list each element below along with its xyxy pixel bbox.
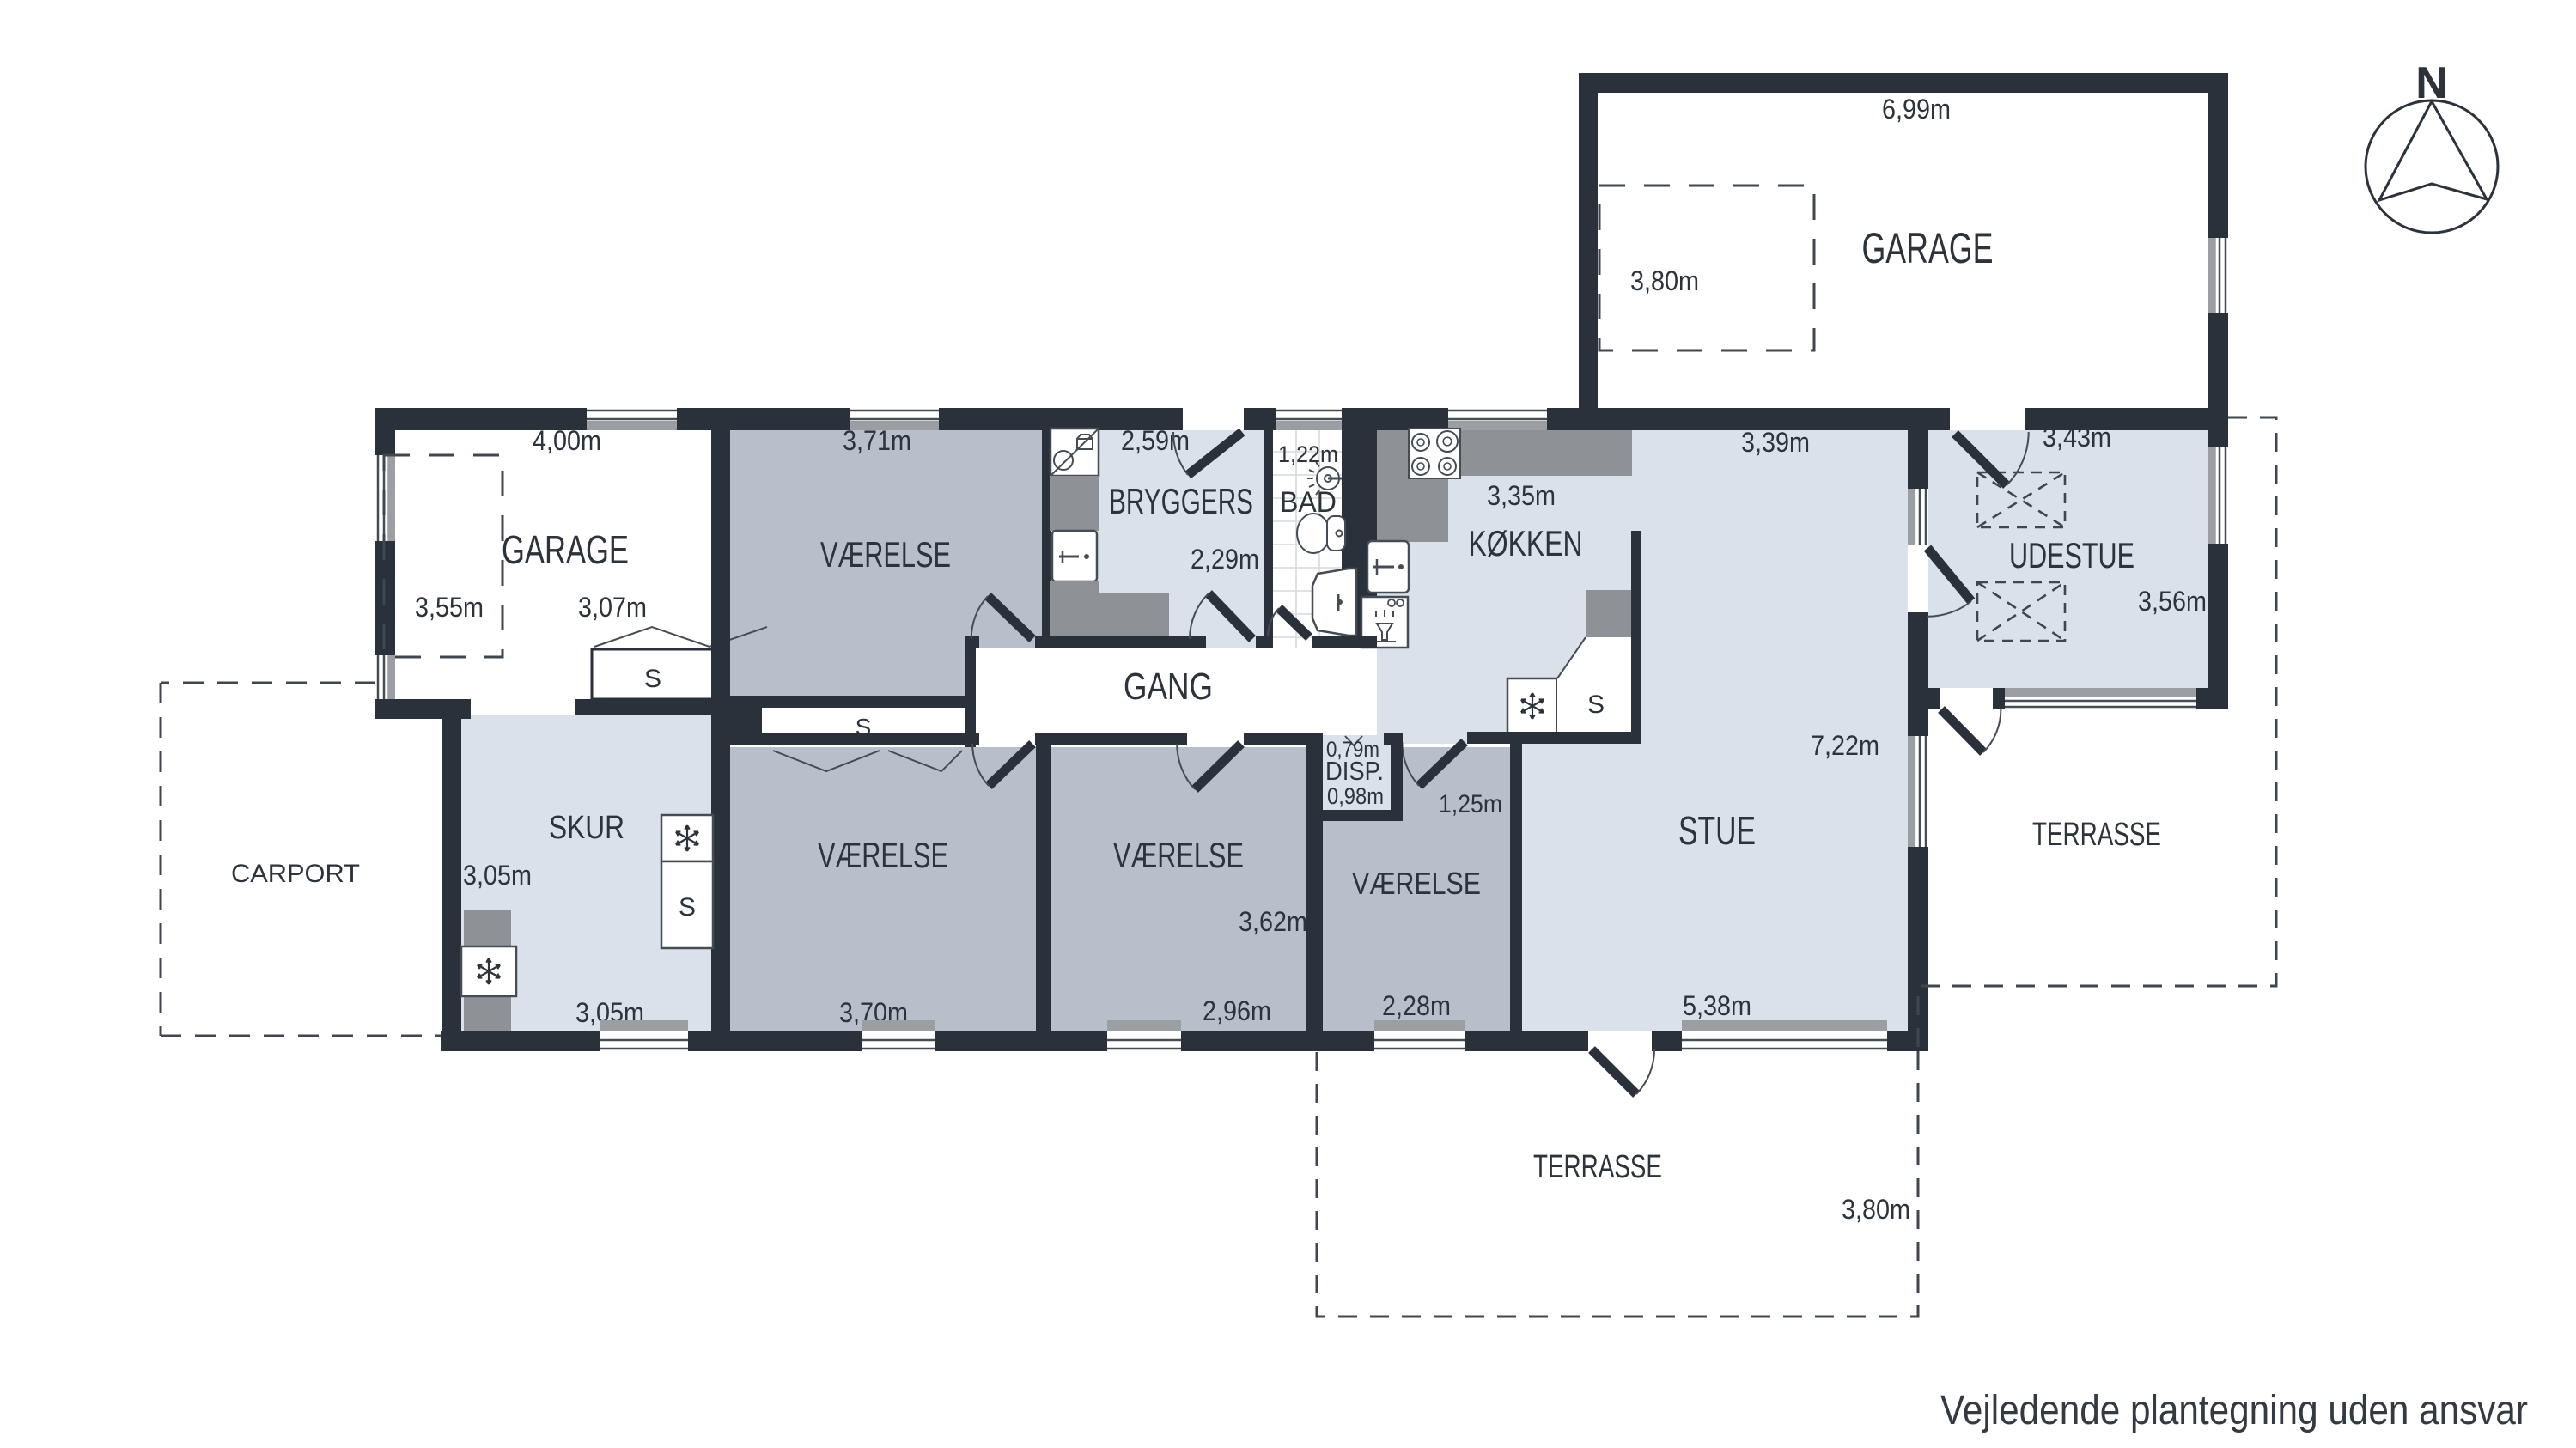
svg-text:3,80m: 3,80m [1842,1194,1910,1225]
svg-text:2,28m: 2,28m [1382,990,1451,1021]
svg-text:N: N [2415,58,2448,108]
svg-text:2,96m: 2,96m [1203,995,1271,1026]
svg-text:5,38m: 5,38m [1683,990,1751,1021]
svg-text:UDESTUE: UDESTUE [2009,535,2134,575]
svg-text:3,56m: 3,56m [2138,586,2207,617]
svg-text:3,55m: 3,55m [415,592,484,623]
svg-text:3,35m: 3,35m [1487,480,1556,511]
svg-text:S: S [1587,691,1605,719]
svg-text:TERRASSE: TERRASSE [2032,817,2161,853]
svg-text:KØKKEN: KØKKEN [1469,523,1583,563]
svg-text:3,62m: 3,62m [1239,906,1307,937]
svg-text:BRYGGERS: BRYGGERS [1109,481,1253,521]
svg-text:TERRASSE: TERRASSE [1533,1149,1662,1185]
svg-text:S: S [679,893,696,922]
svg-text:7,22m: 7,22m [1811,730,1879,761]
svg-text:1,25m: 1,25m [1439,790,1502,818]
svg-text:STUE: STUE [1678,808,1756,853]
svg-text:BAD: BAD [1280,486,1337,519]
svg-text:GARAGE: GARAGE [502,527,629,572]
svg-text:SKUR: SKUR [549,810,624,846]
svg-text:3,07m: 3,07m [578,592,647,623]
svg-text:3,39m: 3,39m [1741,427,1810,458]
svg-text:3,80m: 3,80m [1630,265,1699,296]
svg-text:1,22m: 1,22m [1278,441,1338,467]
svg-text:DISP.: DISP. [1325,756,1384,786]
svg-text:2,29m: 2,29m [1191,544,1259,575]
svg-text:3,43m: 3,43m [2043,422,2111,453]
svg-text:VÆRELSE: VÆRELSE [1352,866,1481,901]
svg-text:0,98m: 0,98m [1327,783,1384,809]
svg-text:4,00m: 4,00m [533,425,601,456]
svg-text:3,05m: 3,05m [463,860,532,891]
svg-text:S: S [644,665,661,693]
svg-text:2,59m: 2,59m [1121,425,1190,456]
svg-text:GARAGE: GARAGE [1862,224,1994,272]
svg-text:3,71m: 3,71m [843,425,911,456]
svg-text:VÆRELSE: VÆRELSE [818,835,948,875]
svg-text:CARPORT: CARPORT [231,860,360,888]
svg-text:VÆRELSE: VÆRELSE [1113,835,1244,875]
svg-text:6,99m: 6,99m [1882,94,1951,125]
svg-text:VÆRELSE: VÆRELSE [820,534,951,575]
svg-text:GANG: GANG [1124,666,1213,708]
svg-text:Vejledende plantegning uden an: Vejledende plantegning uden ansvar [1940,1388,2528,1433]
